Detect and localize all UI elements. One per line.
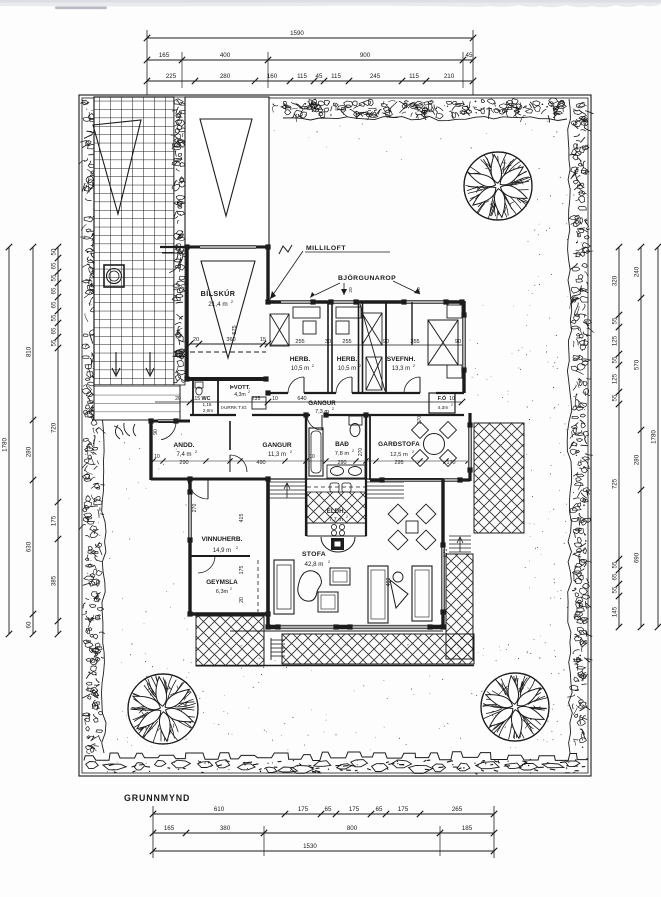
svg-text:165: 165 [164, 825, 175, 832]
svg-text:400: 400 [386, 578, 392, 587]
svg-text:10: 10 [309, 454, 315, 460]
svg-text:45: 45 [466, 52, 473, 59]
svg-text:4,3m: 4,3m [234, 392, 246, 398]
svg-text:15: 15 [260, 337, 266, 343]
svg-text:55: 55 [51, 274, 58, 281]
svg-text:675: 675 [443, 549, 449, 558]
svg-text:42,8 m: 42,8 m [305, 561, 324, 568]
svg-text:55: 55 [612, 356, 619, 363]
svg-text:1,15: 1,15 [203, 402, 212, 407]
svg-text:ANDD.: ANDD. [174, 442, 195, 449]
svg-text:1590: 1590 [290, 30, 304, 37]
svg-text:125: 125 [612, 373, 619, 384]
svg-text:175: 175 [239, 566, 245, 575]
svg-text:BÍLSKÚR: BÍLSKÚR [201, 289, 236, 298]
svg-text:65: 65 [51, 327, 58, 334]
svg-text:11,3 m: 11,3 m [268, 452, 286, 458]
svg-text:255: 255 [295, 339, 304, 345]
svg-text:HERB.: HERB. [290, 356, 311, 363]
svg-text:65: 65 [51, 301, 58, 308]
svg-text:690: 690 [634, 552, 641, 563]
svg-text:20: 20 [193, 337, 199, 343]
svg-text:185: 185 [462, 825, 473, 832]
svg-text:HERB.: HERB. [337, 356, 358, 363]
svg-text:12,5 m: 12,5 m [390, 452, 408, 458]
svg-text:400: 400 [220, 52, 231, 59]
svg-text:65: 65 [51, 287, 58, 294]
svg-text:270: 270 [192, 504, 198, 513]
svg-text:630: 630 [26, 541, 33, 552]
svg-text:2: 2 [248, 390, 250, 394]
svg-text:BAÐ: BAÐ [335, 441, 349, 448]
svg-text:270: 270 [358, 448, 364, 457]
svg-text:1530: 1530 [303, 843, 317, 850]
svg-text:725: 725 [612, 478, 619, 489]
svg-text:60: 60 [26, 621, 33, 628]
svg-text:280: 280 [220, 73, 231, 80]
svg-text:115: 115 [297, 73, 307, 80]
svg-text:360: 360 [226, 337, 235, 343]
svg-text:175: 175 [51, 515, 58, 526]
svg-text:10: 10 [272, 396, 278, 402]
svg-text:115: 115 [331, 73, 341, 80]
svg-text:65: 65 [325, 806, 332, 813]
svg-text:VINNUHERB.: VINNUHERB. [201, 536, 242, 543]
svg-text:7,4 m: 7,4 m [176, 452, 191, 458]
svg-text:90: 90 [153, 429, 159, 435]
svg-text:270: 270 [417, 416, 423, 425]
svg-text:6,3m: 6,3m [216, 589, 229, 595]
svg-text:640: 640 [297, 396, 306, 402]
svg-text:280: 280 [634, 454, 641, 465]
svg-text:21,4 m: 21,4 m [208, 301, 228, 308]
svg-text:175: 175 [298, 806, 309, 813]
svg-text:13,3 m: 13,3 m [392, 366, 410, 372]
svg-text:125: 125 [612, 335, 619, 346]
svg-text:2: 2 [412, 450, 414, 454]
svg-text:2: 2 [230, 587, 232, 591]
svg-text:F.Ó: F.Ó [438, 394, 446, 402]
svg-text:265: 265 [452, 806, 463, 813]
svg-text:415: 415 [239, 514, 245, 523]
svg-text:2: 2 [451, 403, 453, 407]
svg-text:GEYMSLA: GEYMSLA [206, 579, 238, 586]
svg-text:10: 10 [154, 454, 160, 460]
svg-text:280: 280 [26, 446, 33, 457]
svg-text:10,5 m: 10,5 m [338, 366, 356, 372]
svg-text:20: 20 [175, 396, 181, 402]
svg-text:55: 55 [51, 339, 58, 346]
svg-text:295: 295 [395, 460, 404, 466]
svg-text:BJÖRGUNAROP: BJÖRGUNAROP [338, 273, 396, 282]
svg-text:2,0m: 2,0m [203, 408, 213, 413]
svg-text:ÞURRK T.IG: ÞURRK T.IG [221, 405, 247, 410]
svg-text:115: 115 [409, 73, 419, 80]
svg-text:SVEFNH.: SVEFNH. [387, 356, 416, 363]
svg-text:175: 175 [349, 806, 360, 813]
svg-text:7,8 m: 7,8 m [335, 451, 350, 457]
svg-text:45: 45 [316, 73, 323, 80]
svg-text:10,5 m: 10,5 m [291, 366, 309, 372]
svg-text:2: 2 [346, 515, 348, 519]
svg-text:20: 20 [239, 597, 245, 603]
svg-text:165: 165 [159, 52, 170, 59]
svg-text:2: 2 [332, 407, 334, 411]
svg-text:30: 30 [325, 339, 331, 345]
svg-text:380: 380 [220, 825, 231, 832]
svg-text:65: 65 [51, 262, 58, 269]
svg-text:145: 145 [612, 606, 619, 617]
svg-text:245: 245 [370, 73, 381, 80]
svg-text:20: 20 [416, 287, 422, 293]
svg-text:355: 355 [410, 339, 419, 345]
svg-text:4,3m: 4,3m [438, 405, 449, 411]
svg-text:570: 570 [634, 359, 641, 370]
svg-text:14,9 m: 14,9 m [213, 548, 231, 554]
svg-text:610: 610 [214, 806, 225, 813]
svg-text:55: 55 [51, 314, 58, 321]
svg-text:1780: 1780 [651, 430, 658, 444]
svg-text:385: 385 [51, 575, 58, 586]
svg-text:810: 810 [26, 346, 33, 357]
svg-text:720: 720 [51, 422, 58, 433]
svg-text:10: 10 [449, 396, 455, 402]
svg-text:GARÐSTOFA: GARÐSTOFA [378, 441, 420, 448]
svg-text:GANGUR: GANGUR [308, 400, 336, 407]
svg-text:800: 800 [347, 825, 358, 832]
svg-text:575: 575 [232, 325, 238, 334]
svg-text:7,7 m: 7,7 m [329, 517, 343, 523]
svg-text:320: 320 [612, 275, 619, 286]
svg-text:55: 55 [612, 394, 619, 401]
svg-text:50: 50 [51, 248, 58, 255]
svg-text:STOFA: STOFA [302, 551, 326, 558]
svg-text:160: 160 [267, 73, 278, 80]
svg-text:55: 55 [612, 317, 619, 324]
svg-text:55: 55 [612, 586, 619, 593]
svg-text:GRUNNMYND: GRUNNMYND [124, 793, 190, 803]
svg-text:65: 65 [376, 806, 383, 813]
svg-text:225: 225 [166, 73, 177, 80]
svg-text:ELDH.: ELDH. [327, 508, 346, 515]
svg-text:55: 55 [612, 561, 619, 568]
svg-text:175: 175 [398, 806, 409, 813]
svg-text:MILLILOFT: MILLILOFT [306, 245, 346, 252]
svg-text:240: 240 [634, 266, 641, 277]
svg-text:65: 65 [612, 573, 619, 580]
svg-text:90: 90 [383, 339, 389, 345]
svg-text:1780: 1780 [2, 438, 9, 452]
svg-text:GANGUR: GANGUR [262, 442, 292, 449]
svg-text:210: 210 [444, 73, 455, 80]
svg-text:2: 2 [352, 449, 354, 453]
svg-text:900: 900 [360, 52, 371, 59]
svg-text:20: 20 [348, 287, 354, 293]
svg-text:255: 255 [342, 339, 351, 345]
